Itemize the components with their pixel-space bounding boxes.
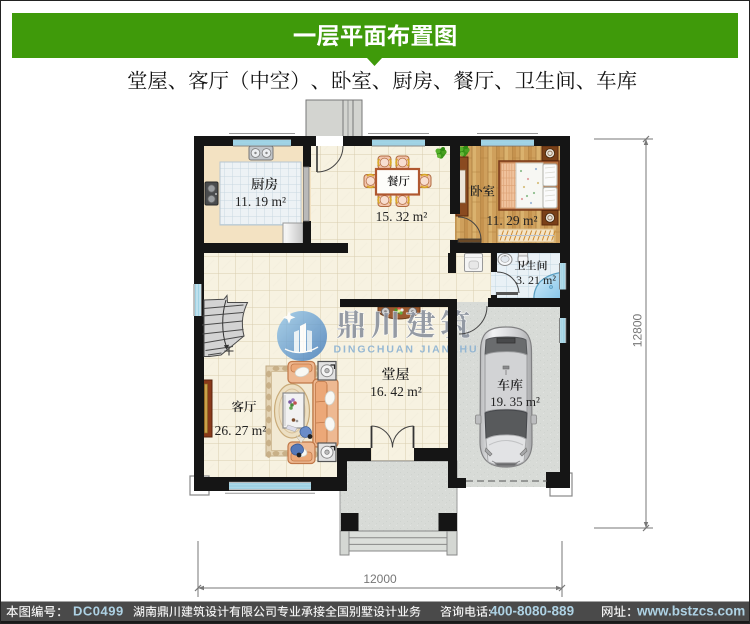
svg-text:16. 42 m²: 16. 42 m²	[370, 384, 422, 399]
svg-text:3. 21 m²: 3. 21 m²	[516, 273, 556, 287]
svg-text:26. 27 m²: 26. 27 m²	[215, 423, 267, 438]
svg-text:400-8080-889: 400-8080-889	[490, 604, 574, 619]
svg-text:12800: 12800	[631, 313, 645, 347]
svg-text:15. 32 m²: 15. 32 m²	[376, 209, 428, 224]
svg-text:www.bstzcs.com: www.bstzcs.com	[636, 604, 745, 619]
svg-text:11. 29 m²: 11. 29 m²	[486, 213, 537, 228]
svg-text:19. 35 m²: 19. 35 m²	[490, 394, 540, 409]
svg-text:12000: 12000	[363, 572, 397, 586]
svg-text:DC0499: DC0499	[73, 604, 124, 619]
svg-text:11. 19 m²: 11. 19 m²	[235, 194, 286, 209]
